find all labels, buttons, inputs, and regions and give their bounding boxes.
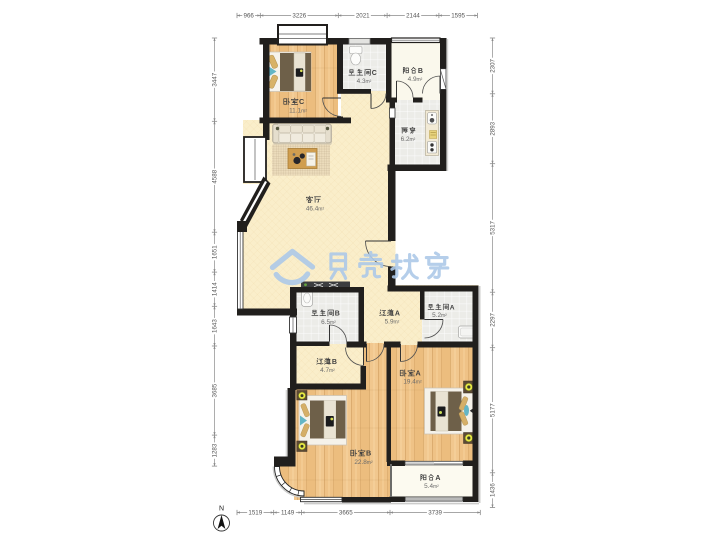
- svg-text:4.3m²: 4.3m²: [357, 78, 372, 85]
- svg-text:C: C: [372, 70, 377, 77]
- svg-text:3447: 3447: [212, 72, 219, 86]
- svg-text:3739: 3739: [428, 510, 442, 517]
- svg-text:B: B: [332, 359, 337, 366]
- svg-text:6.2m²: 6.2m²: [401, 136, 416, 143]
- svg-text:4.9m²: 4.9m²: [408, 76, 423, 83]
- svg-text:11.1m²: 11.1m²: [289, 107, 307, 114]
- svg-text:4.7m²: 4.7m²: [320, 367, 335, 374]
- svg-text:2144: 2144: [406, 13, 420, 20]
- svg-text:A: A: [395, 311, 400, 318]
- svg-text:2297: 2297: [490, 312, 497, 326]
- svg-text:B: B: [418, 68, 423, 75]
- svg-text:1283: 1283: [212, 443, 219, 457]
- svg-text:1436: 1436: [490, 483, 497, 497]
- svg-text:5177: 5177: [490, 403, 497, 417]
- svg-text:B: B: [335, 311, 340, 318]
- svg-text:6.5m²: 6.5m²: [321, 319, 336, 326]
- svg-text:1595: 1595: [451, 13, 465, 20]
- svg-text:5.2m²: 5.2m²: [432, 312, 447, 319]
- svg-text:A: A: [435, 475, 440, 482]
- svg-text:2893: 2893: [490, 121, 497, 135]
- svg-text:1651: 1651: [212, 245, 219, 259]
- svg-text:22.8m²: 22.8m²: [354, 459, 373, 466]
- svg-text:1643: 1643: [212, 319, 219, 333]
- svg-text:1149: 1149: [281, 510, 295, 517]
- svg-text:B: B: [366, 449, 371, 458]
- svg-text:N: N: [219, 506, 224, 513]
- svg-text:46.4m²: 46.4m²: [306, 205, 325, 212]
- svg-text:19.4m²: 19.4m²: [403, 378, 422, 385]
- svg-text:2307: 2307: [490, 58, 497, 72]
- svg-text:3665: 3665: [339, 510, 353, 517]
- svg-text:5.9m²: 5.9m²: [385, 318, 400, 325]
- svg-text:4588: 4588: [212, 169, 219, 183]
- svg-text:2021: 2021: [356, 13, 370, 20]
- svg-text:C: C: [299, 97, 304, 106]
- svg-text:966: 966: [244, 13, 255, 20]
- svg-text:3685: 3685: [212, 383, 219, 397]
- svg-text:5.4m²: 5.4m²: [424, 483, 439, 490]
- svg-text:1414: 1414: [212, 282, 219, 296]
- svg-text:1519: 1519: [248, 510, 262, 517]
- svg-text:A: A: [450, 304, 455, 311]
- svg-text:A: A: [415, 369, 420, 378]
- svg-text:5317: 5317: [490, 220, 497, 234]
- svg-text:3226: 3226: [292, 13, 306, 20]
